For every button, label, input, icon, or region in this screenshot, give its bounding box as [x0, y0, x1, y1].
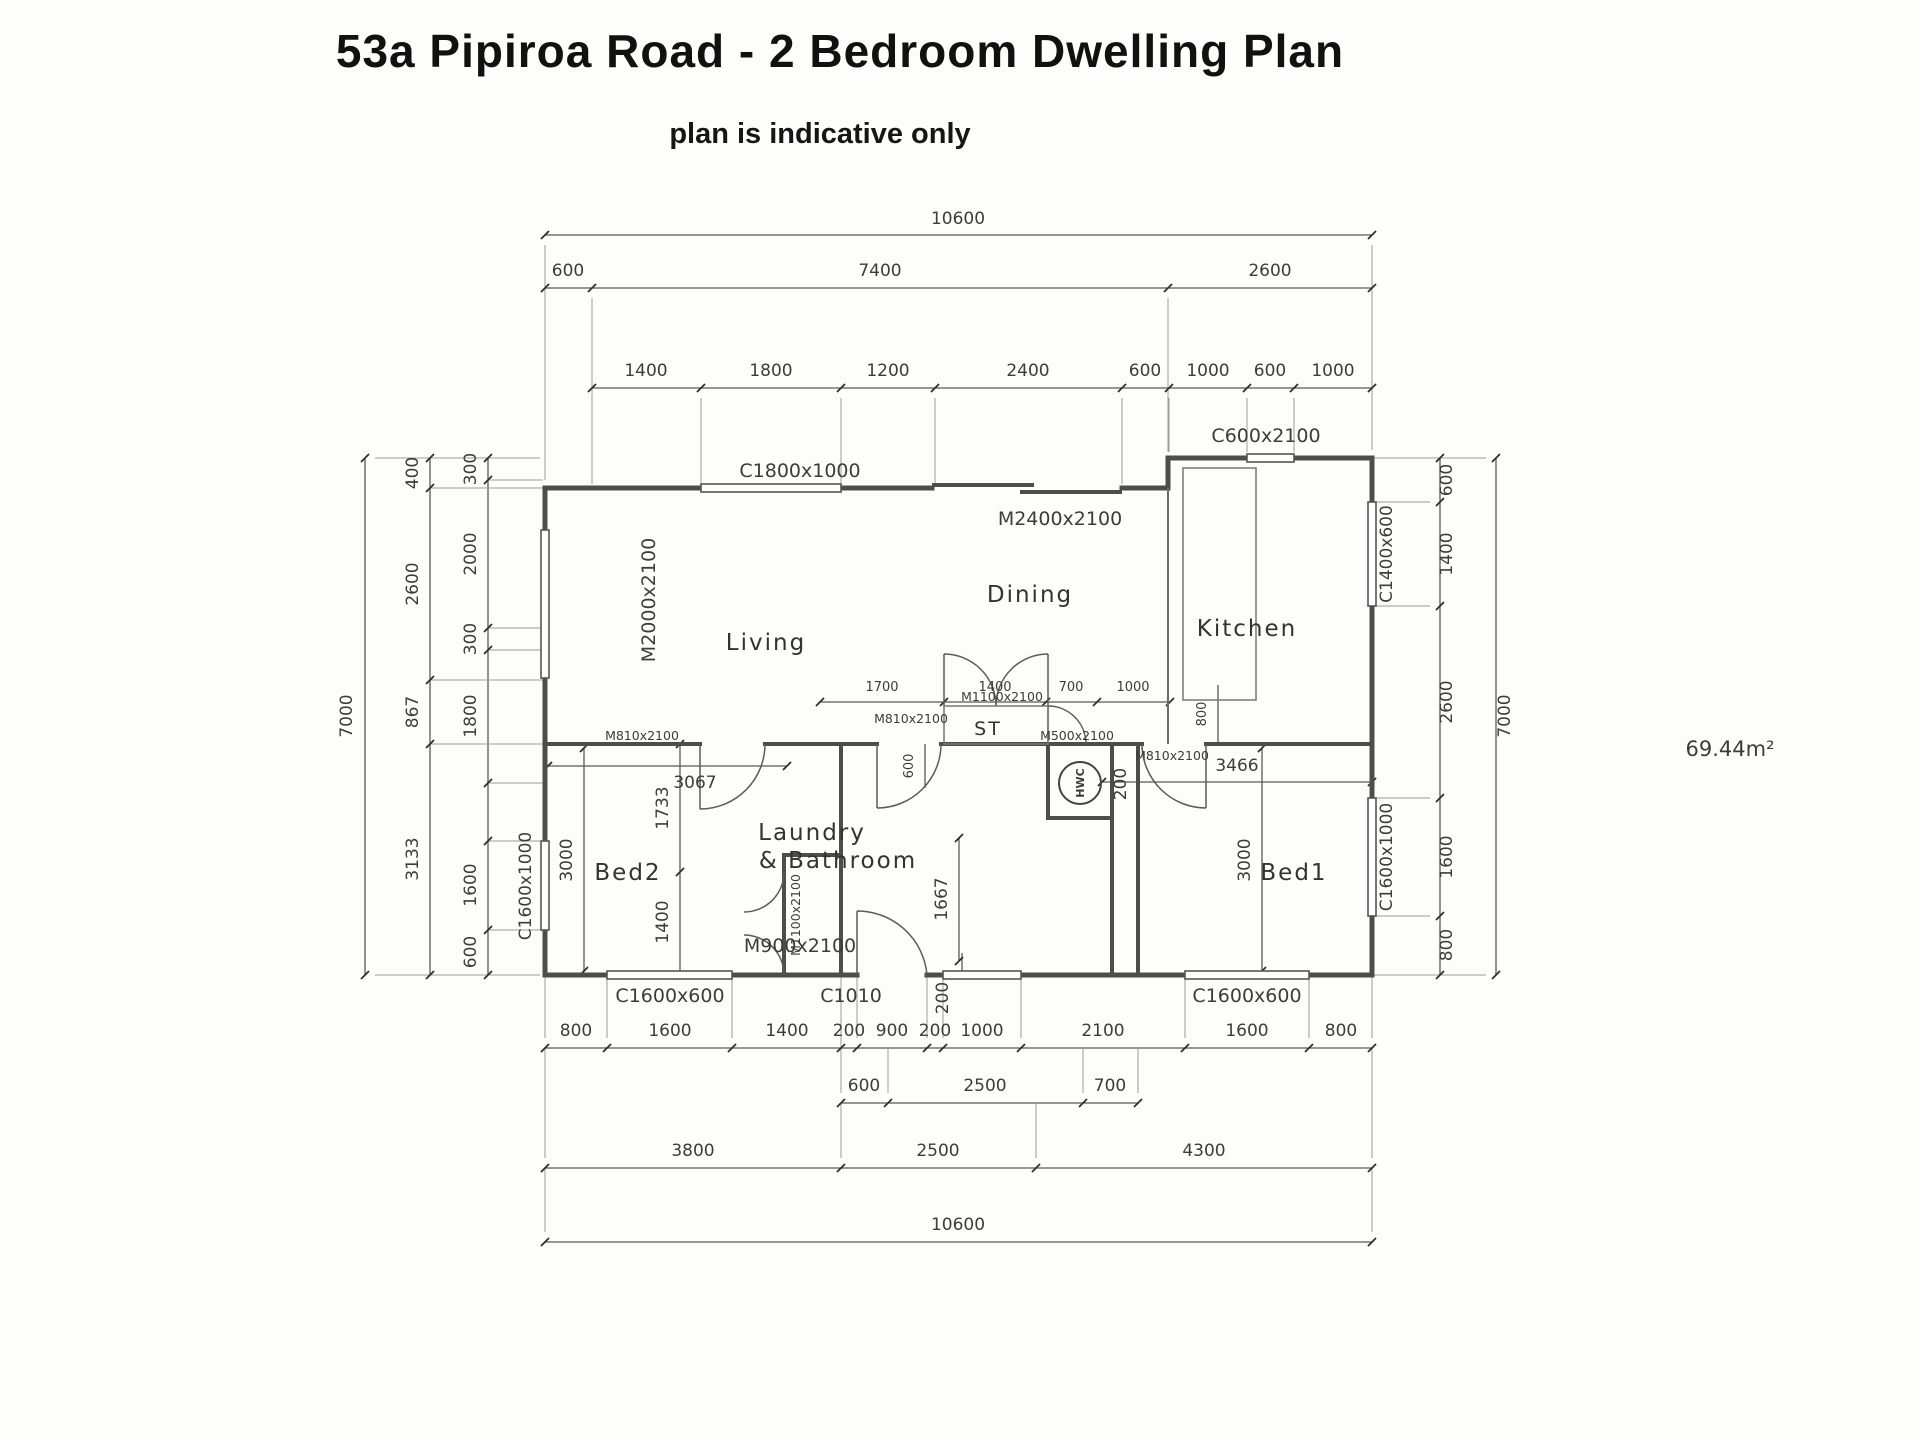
dim-bot1-1600b: 1600: [1225, 1021, 1268, 1041]
dimension-lines: [365, 235, 1496, 1242]
dim-left-300a: 300: [461, 453, 481, 485]
label-m1100-st: M1100x2100: [961, 689, 1043, 704]
dim-bot1-1400: 1400: [765, 1021, 808, 1041]
dim-int-3000-bed2: 3000: [557, 838, 577, 881]
dim-bot2-600: 600: [848, 1076, 880, 1096]
dim-int-200-bed1: 200: [1111, 768, 1131, 800]
extension-lines: [375, 245, 1486, 1232]
dim-bot1-200b: 200: [919, 1021, 951, 1041]
dim-top3-2400: 2400: [1006, 361, 1049, 381]
dim-bot2-700: 700: [1094, 1076, 1126, 1096]
dim-top3-600a: 600: [1129, 361, 1161, 381]
label-m810-bath: M810x2100: [874, 711, 948, 726]
label-c1600-bed1: C1600x600: [1192, 985, 1301, 1007]
dim-left-600: 600: [461, 936, 481, 968]
room-storage: ST: [974, 718, 1002, 740]
label-window-c1600-right: C1600x1000: [1377, 803, 1397, 911]
dim-bot1-900: 900: [876, 1021, 908, 1041]
dim-bot2-2500: 2500: [963, 1076, 1006, 1096]
room-bed1: Bed1: [1260, 860, 1327, 886]
window-c1800-top: [701, 484, 841, 492]
dim-bot1-800b: 800: [1325, 1021, 1357, 1041]
window-c1010-bath: [943, 971, 1021, 979]
label-m810-bed1: M810x2100: [1135, 748, 1209, 763]
window-c1600-left: [541, 841, 549, 930]
dim-overall-right: 7000: [1495, 694, 1515, 737]
dim-right-1600: 1600: [1437, 835, 1457, 878]
dim-left-400: 400: [403, 457, 423, 489]
label-m500-hwc: M500x2100: [1040, 728, 1114, 743]
dim-int-1700: 1700: [865, 680, 898, 695]
kitchen-counter: [1183, 468, 1256, 700]
dim-left-3133: 3133: [403, 837, 423, 880]
dim-int-200-bottom: 200: [933, 982, 953, 1014]
dim-right-800: 800: [1437, 929, 1457, 961]
dim-int-v600: 600: [902, 754, 917, 779]
room-laundry-line1: Laundry: [758, 820, 866, 846]
slider-m2400: [932, 485, 1122, 492]
label-window-c1600-left: C1600x1000: [516, 832, 536, 940]
dim-bot1-1000: 1000: [960, 1021, 1003, 1041]
dim-int-v1400: 1400: [653, 900, 673, 943]
dim-int-3000-bed1: 3000: [1235, 838, 1255, 881]
dim-int-700: 700: [1059, 680, 1084, 695]
dim-bot1-1600a: 1600: [648, 1021, 691, 1041]
dim-left-2000: 2000: [461, 532, 481, 575]
room-kitchen: Kitchen: [1197, 616, 1297, 642]
area-note: 69.44m²: [1686, 737, 1775, 761]
dim-top3-1000a: 1000: [1186, 361, 1229, 381]
dim-left-867: 867: [403, 696, 423, 728]
dim-bot1-800a: 800: [560, 1021, 592, 1041]
window-c1600-bed2: [607, 971, 732, 979]
label-m2400-dining: M2400x2100: [998, 508, 1122, 530]
dim-overall-top: 10600: [931, 209, 985, 229]
dim-left-300b: 300: [461, 623, 481, 655]
dim-top2-7400: 7400: [858, 261, 901, 281]
label-c1600-bed2: C1600x600: [615, 985, 724, 1007]
label-hwc: HWC: [1074, 768, 1087, 797]
dim-right-2600: 2600: [1437, 680, 1457, 723]
window-c1600-bed1: [1185, 971, 1309, 979]
floor-plan-sheet: 53a Pipiroa Road - 2 Bedroom Dwelling Pl…: [0, 0, 1920, 1440]
dim-overall-left: 7000: [337, 694, 357, 737]
door-laundry-exterior: [857, 911, 927, 975]
dim-top3-1800: 1800: [749, 361, 792, 381]
dim-int-3466: 3466: [1215, 756, 1258, 776]
dim-bot1-200a: 200: [833, 1021, 865, 1041]
dim-top2-2600: 2600: [1248, 261, 1291, 281]
window-c1600-right: [1368, 798, 1376, 916]
dim-bot3-2500: 2500: [916, 1141, 959, 1161]
dim-right-1400: 1400: [1437, 532, 1457, 575]
dim-right-600: 600: [1437, 464, 1457, 496]
dim-bot1-2100: 2100: [1081, 1021, 1124, 1041]
window-c600-top: [1247, 454, 1294, 462]
dim-bot3-4300: 4300: [1182, 1141, 1225, 1161]
dim-int-1000: 1000: [1116, 680, 1149, 695]
label-c1800-top: C1800x1000: [739, 460, 860, 482]
room-dining: Dining: [987, 582, 1073, 608]
door-m2000-left: [541, 530, 549, 678]
dim-int-1667: 1667: [932, 877, 952, 920]
room-laundry-line2: & Bathroom: [759, 848, 917, 874]
dim-left-1800: 1800: [461, 694, 481, 737]
dim-bot3-3800: 3800: [671, 1141, 714, 1161]
label-m1100-wardrobe: M1100x2100: [788, 874, 803, 956]
floor-plan-canvas: 10600 600 7400 2600 1400 1800 1200 2400 …: [0, 0, 1920, 1440]
dim-left-1600: 1600: [461, 863, 481, 906]
room-living: Living: [726, 630, 806, 656]
dim-top3-600b: 600: [1254, 361, 1286, 381]
dim-top3-1000b: 1000: [1311, 361, 1354, 381]
dim-int-1733: 1733: [653, 786, 673, 829]
dim-top2-600: 600: [552, 261, 584, 281]
dim-top3-1400: 1400: [624, 361, 667, 381]
label-c600-top: C600x2100: [1211, 425, 1320, 447]
window-c1400-right: [1368, 502, 1376, 606]
room-bed2: Bed2: [594, 860, 661, 886]
dim-int-v800: 800: [1195, 702, 1210, 727]
door-wardrobe-bifold: [744, 872, 784, 975]
label-m2000-living: M2000x2100: [638, 538, 660, 662]
dim-overall-bottom: 10600: [931, 1215, 985, 1235]
dim-top3-1200: 1200: [866, 361, 909, 381]
label-m810-bed2: M810x2100: [605, 728, 679, 743]
dimension-ticks: [361, 231, 1500, 1246]
label-window-c1400-right: C1400x600: [1377, 505, 1397, 603]
dim-left-2600: 2600: [403, 562, 423, 605]
dim-int-3067: 3067: [673, 773, 716, 793]
label-c1010-bath: C1010: [820, 985, 882, 1007]
